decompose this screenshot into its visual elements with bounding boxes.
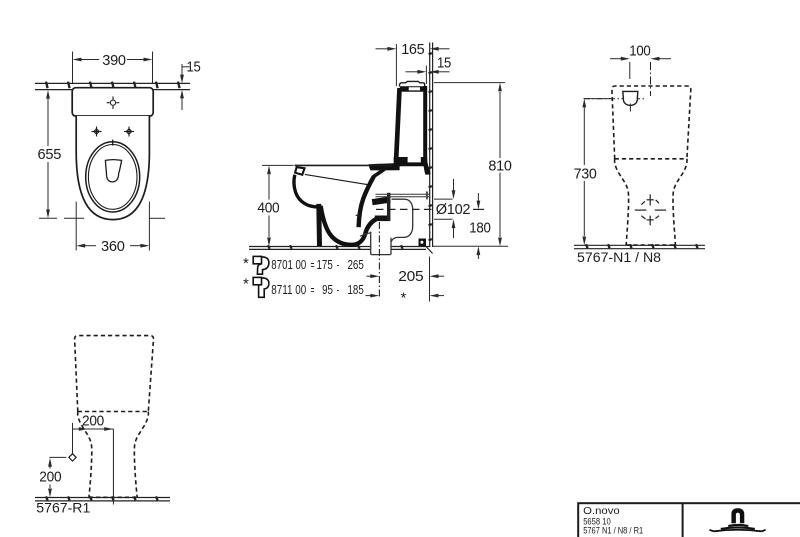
svg-text:655: 655 bbox=[38, 146, 62, 163]
svg-text:5767-N1 / N8: 5767-N1 / N8 bbox=[577, 250, 661, 265]
svg-text:5767 N1 / N8 / R1: 5767 N1 / N8 / R1 bbox=[583, 526, 643, 536]
svg-text:180: 180 bbox=[469, 220, 490, 237]
svg-text:O.novo: O.novo bbox=[583, 505, 620, 517]
svg-text:400: 400 bbox=[257, 199, 279, 216]
svg-text:100: 100 bbox=[629, 43, 650, 60]
svg-text:15: 15 bbox=[437, 55, 451, 72]
svg-text:200: 200 bbox=[39, 469, 61, 486]
svg-text:205: 205 bbox=[398, 268, 423, 285]
svg-text:15: 15 bbox=[187, 58, 201, 75]
svg-text:5767-R1: 5767-R1 bbox=[36, 501, 90, 516]
svg-text:360: 360 bbox=[101, 238, 125, 255]
svg-text:8711 00=95-185: 8711 00=95-185 bbox=[271, 283, 364, 297]
svg-text:*: * bbox=[243, 255, 249, 272]
svg-text:165: 165 bbox=[401, 41, 424, 58]
svg-text:*: * bbox=[401, 290, 407, 307]
svg-text:730: 730 bbox=[574, 166, 597, 183]
svg-text:200: 200 bbox=[82, 412, 104, 429]
svg-text:*: * bbox=[243, 276, 249, 293]
svg-text:8701 00=175-265: 8701 00=175-265 bbox=[271, 258, 364, 272]
svg-text:810: 810 bbox=[488, 157, 511, 174]
svg-text:Ø102: Ø102 bbox=[436, 201, 471, 218]
svg-text:390: 390 bbox=[102, 52, 126, 69]
